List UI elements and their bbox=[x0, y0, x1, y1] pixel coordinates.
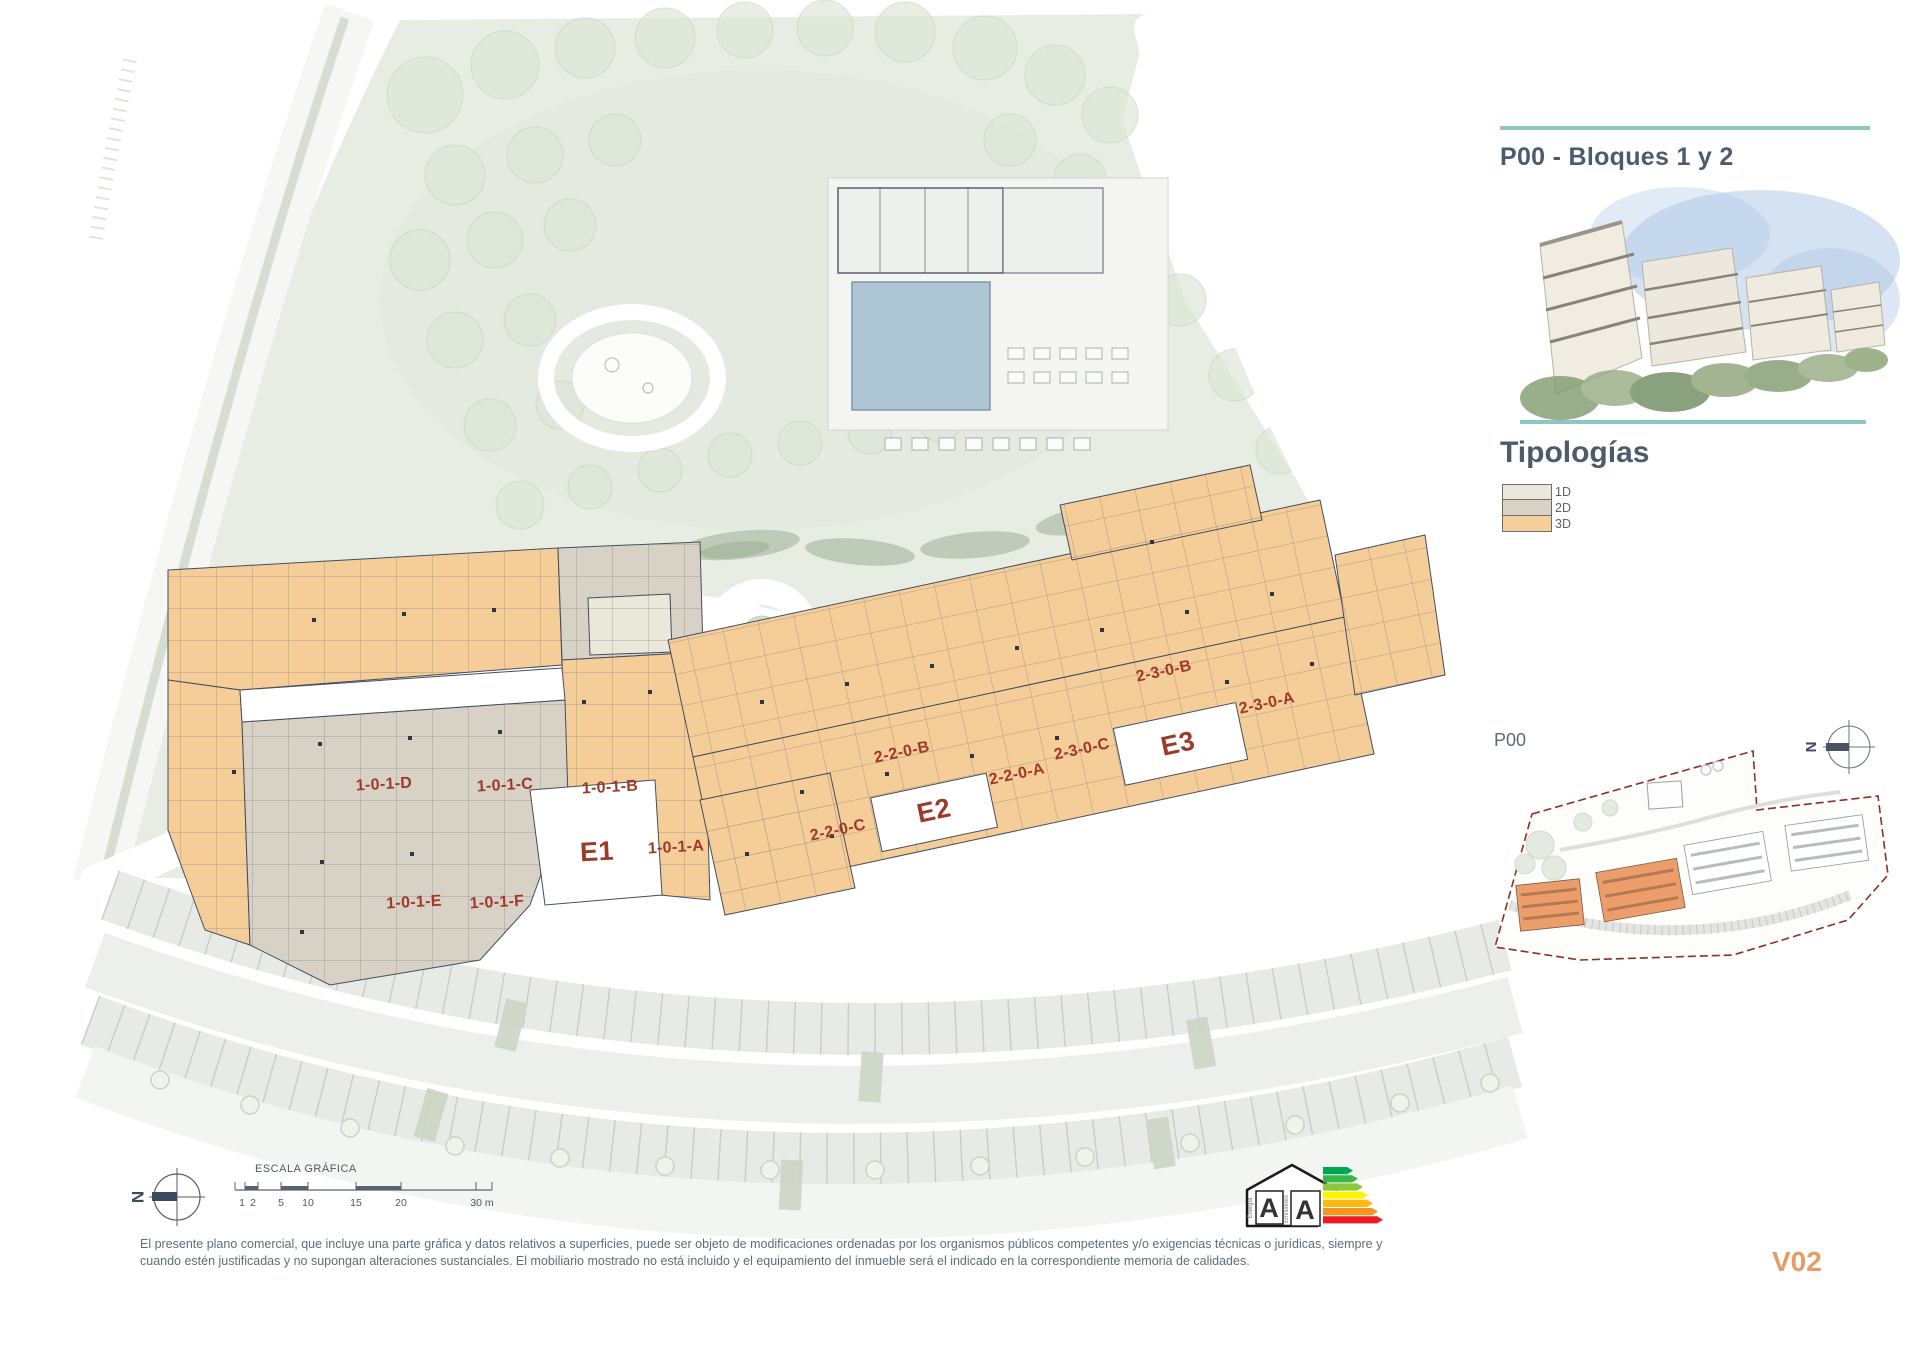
north-label: N bbox=[128, 1191, 147, 1203]
sheet-graphics: ESCALA GRÁFICA 1 2 5 10 15 20 30 m N bbox=[0, 0, 1920, 1357]
scale-bar-title: ESCALA GRÁFICA bbox=[255, 1162, 357, 1175]
legend-label-3d: 3D bbox=[1555, 517, 1571, 531]
scale-tick: 20 bbox=[395, 1197, 407, 1209]
legend-item-2d: 2D bbox=[1502, 500, 1571, 516]
title-rule bbox=[1500, 126, 1870, 130]
page-title: P00 - Bloques 1 y 2 bbox=[1500, 143, 1734, 172]
overview-minimap: N bbox=[1495, 720, 1888, 960]
scale-tick: 2 bbox=[250, 1197, 256, 1209]
typologies-legend: 1D 2D 3D bbox=[1502, 484, 1571, 532]
legend-item-3d: 3D bbox=[1502, 516, 1571, 532]
scale-tick: 5 bbox=[278, 1197, 284, 1209]
swimming-pool bbox=[852, 282, 990, 410]
minimap-north-label: N bbox=[1803, 742, 1820, 753]
legend-swatch-1d bbox=[1502, 484, 1552, 500]
site-plan: ESCALA GRÁFICA 1 2 5 10 15 20 30 m N bbox=[85, 0, 1520, 1226]
legend-label-1d: 1D bbox=[1555, 485, 1571, 499]
pool-area bbox=[828, 178, 1168, 450]
building-1-footprint bbox=[168, 542, 710, 985]
entrance-label-e1: E1 bbox=[579, 836, 615, 869]
emissions-axis-label: Emisiones bbox=[1284, 1195, 1290, 1223]
north-compass: N bbox=[128, 1168, 205, 1226]
tipologias-rule bbox=[1520, 420, 1866, 424]
legend-swatch-3d bbox=[1502, 516, 1552, 532]
energy-letter: A bbox=[1259, 1193, 1279, 1223]
unit-label-1-0-1-d: 1-0-1-D bbox=[355, 775, 412, 796]
minimap-floor-label: P00 bbox=[1494, 730, 1526, 751]
scale-tick: 10 bbox=[302, 1197, 314, 1209]
unit-label-1-0-1-a: 1-0-1-A bbox=[647, 838, 704, 859]
disclaimer-line-2: cuando estén justificadas y no supongan … bbox=[140, 1253, 1440, 1270]
unit-label-1-0-1-c: 1-0-1-C bbox=[476, 776, 533, 797]
unit-label-1-0-1-e: 1-0-1-E bbox=[386, 893, 442, 914]
legend-label-2d: 2D bbox=[1555, 501, 1571, 515]
scale-tick: 1 bbox=[239, 1197, 245, 1209]
disclaimer-line-1: El presente plano comercial, que incluye… bbox=[140, 1236, 1440, 1253]
club-building bbox=[838, 188, 1003, 273]
building-rendering bbox=[1520, 187, 1900, 420]
legend-swatch-2d bbox=[1502, 500, 1552, 516]
minimap-compass: N bbox=[1803, 720, 1875, 774]
tipologias-heading: Tipologías bbox=[1500, 436, 1649, 470]
emissions-letter: A bbox=[1295, 1195, 1315, 1225]
scale-tick: 30 m bbox=[470, 1197, 494, 1209]
right-panel-graphics: N bbox=[1495, 126, 1900, 960]
minimap-block-1-highlight bbox=[1516, 879, 1584, 931]
unit-label-1-0-1-f: 1-0-1-F bbox=[469, 893, 524, 914]
unit-label-1-0-1-b: 1-0-1-B bbox=[581, 778, 638, 799]
scale-tick: 15 bbox=[350, 1197, 362, 1209]
version-label: V02 bbox=[1772, 1246, 1822, 1278]
legend-item-1d: 1D bbox=[1502, 484, 1571, 500]
energy-axis-label: Energía bbox=[1248, 1197, 1254, 1219]
